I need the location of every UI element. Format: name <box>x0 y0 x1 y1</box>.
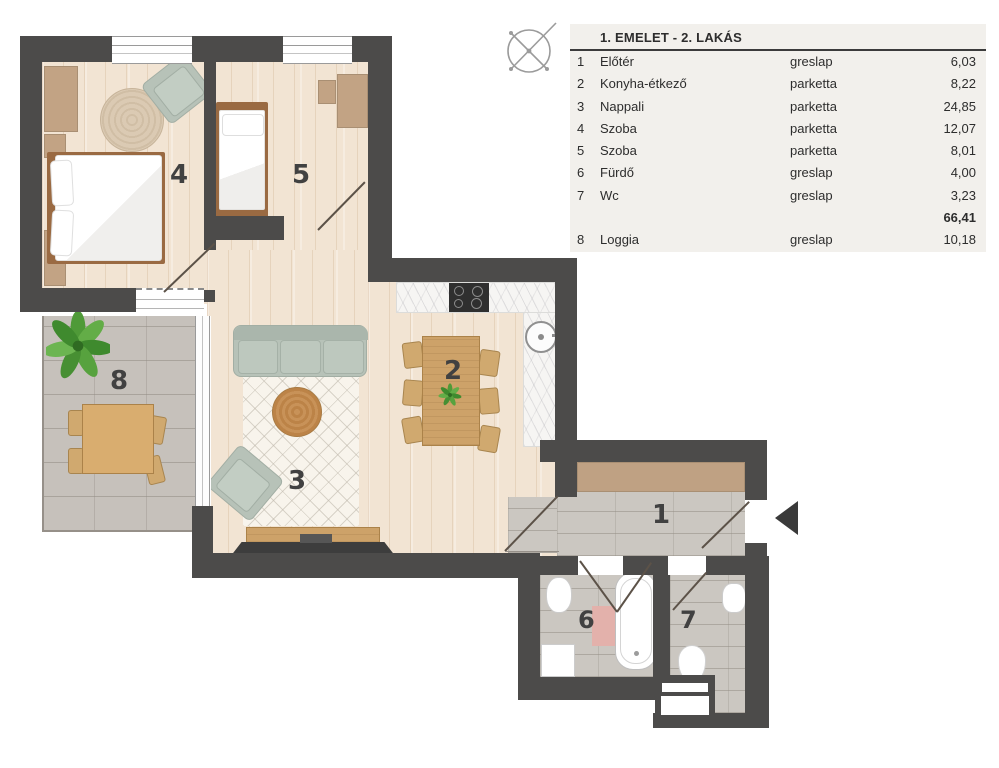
bed-pillow <box>50 209 74 256</box>
wall <box>540 556 578 575</box>
burner <box>471 298 482 309</box>
table-row: 4 Szoba parketta 12,07 <box>570 118 986 140</box>
sofa-cushion <box>238 340 278 374</box>
floor-material: greslap <box>790 162 910 184</box>
burner <box>454 286 464 296</box>
plant-icon <box>438 383 462 407</box>
table-total-row: 66,41 <box>570 207 986 229</box>
row-number: 5 <box>570 140 600 162</box>
window <box>283 36 352 64</box>
room-area: 6,03 <box>910 51 986 73</box>
room-name: Szoba <box>600 140 790 162</box>
table-row: 8 Loggia greslap 10,18 <box>570 229 986 251</box>
room-label-4: 4 <box>170 160 188 190</box>
row-number: 8 <box>570 229 600 251</box>
row-number: 4 <box>570 118 600 140</box>
area-table-title: 1. EMELET - 2. LAKÁS <box>570 24 986 51</box>
wc-niche-pane <box>661 696 709 715</box>
sink-drain <box>538 334 544 340</box>
floor-plan-page: 1 2 3 4 5 6 7 8 1. EMELET - 2. LAKÁS 1 E… <box>0 0 999 768</box>
bed-pillow <box>222 114 264 136</box>
area-table: 1. EMELET - 2. LAKÁS 1 Előtér greslap 6,… <box>570 24 986 252</box>
wardrobe <box>44 66 78 132</box>
row-number: 7 <box>570 185 600 207</box>
single-bed <box>216 102 268 218</box>
room-area: 24,85 <box>910 96 986 118</box>
loggia-table <box>82 404 154 474</box>
cooktop <box>449 283 489 312</box>
wall <box>216 216 284 240</box>
wc-niche-pane <box>662 683 708 692</box>
wall <box>518 677 672 700</box>
wardrobe <box>337 74 368 128</box>
tv-mount <box>300 534 332 543</box>
double-bed <box>47 152 165 264</box>
north-compass-icon <box>498 12 564 82</box>
table-row: 3 Nappali parketta 24,85 <box>570 96 986 118</box>
wall <box>368 258 577 282</box>
loggia-edge-line <box>42 316 44 532</box>
bed-pillow <box>50 159 74 206</box>
bathtub <box>615 572 657 670</box>
room-name: Fürdő <box>600 162 790 184</box>
coffee-table <box>272 387 322 437</box>
total-area: 66,41 <box>910 207 986 229</box>
wall <box>745 440 767 500</box>
sofa <box>233 325 367 377</box>
entrance-door-gap <box>745 500 767 543</box>
floor-material: greslap <box>790 51 910 73</box>
wall <box>745 556 769 728</box>
row-number <box>570 207 600 229</box>
room-label-6: 6 <box>578 606 595 634</box>
sofa-cushion <box>323 340 364 374</box>
wc-sink <box>722 583 746 613</box>
room-label-8: 8 <box>110 366 128 396</box>
room-label-1: 1 <box>652 500 670 530</box>
room-label-5: 5 <box>292 160 310 190</box>
room-name <box>600 207 790 229</box>
room-label-3: 3 <box>288 466 306 496</box>
room-name: Szoba <box>600 118 790 140</box>
room-label-2: 2 <box>444 356 462 386</box>
burner <box>454 299 463 308</box>
table-row: 7 Wc greslap 3,23 <box>570 185 986 207</box>
kitchen-sink <box>525 321 557 353</box>
bathtub-drain <box>634 651 639 656</box>
plant-icon <box>46 312 110 380</box>
wall <box>555 282 577 497</box>
floor-material: greslap <box>790 229 910 251</box>
dining-chair <box>402 379 424 407</box>
room-area: 12,07 <box>910 118 986 140</box>
table-row: 6 Fürdő greslap 4,00 <box>570 162 986 184</box>
floor-material: parketta <box>790 73 910 95</box>
wall <box>204 62 216 250</box>
desk <box>318 80 336 104</box>
room-label-7: 7 <box>680 606 697 634</box>
row-number: 2 <box>570 73 600 95</box>
hall-wardrobe <box>577 462 745 492</box>
loggia-glass-wall <box>195 316 211 506</box>
row-number: 1 <box>570 51 600 73</box>
dining-chair <box>478 387 500 415</box>
table-row: 1 Előtér greslap 6,03 <box>570 51 986 73</box>
loggia-edge-line <box>42 530 196 532</box>
floor-material <box>790 207 910 229</box>
washing-machine <box>541 644 575 677</box>
bathroom-sink <box>546 577 572 613</box>
table-row: 5 Szoba parketta 8,01 <box>570 140 986 162</box>
threshold-line <box>505 551 559 552</box>
table-row: 2 Konyha-étkező parketta 8,22 <box>570 73 986 95</box>
room-name: Loggia <box>600 229 790 251</box>
sofa-back <box>234 326 368 340</box>
room-area: 3,23 <box>910 185 986 207</box>
wall <box>20 36 42 312</box>
burner <box>472 286 483 297</box>
room-area: 8,01 <box>910 140 986 162</box>
window <box>112 36 192 64</box>
hall-tile-floor <box>557 492 745 556</box>
floor-material: greslap <box>790 185 910 207</box>
wall <box>368 36 392 282</box>
room-area: 8,22 <box>910 73 986 95</box>
floor-material: parketta <box>790 118 910 140</box>
entrance-arrow-icon <box>775 501 798 535</box>
wall <box>540 440 767 462</box>
room-name: Konyha-étkező <box>600 73 790 95</box>
room-area: 10,18 <box>910 229 986 251</box>
wall <box>196 553 540 578</box>
room-area: 4,00 <box>910 162 986 184</box>
row-number: 6 <box>570 162 600 184</box>
balcony-door <box>136 288 204 316</box>
floor-material: parketta <box>790 140 910 162</box>
row-number: 3 <box>570 96 600 118</box>
room-name: Nappali <box>600 96 790 118</box>
room-name: Wc <box>600 185 790 207</box>
room-name: Előtér <box>600 51 790 73</box>
floor-material: parketta <box>790 96 910 118</box>
wall <box>653 575 670 680</box>
wall <box>20 288 138 312</box>
sofa-cushion <box>280 340 321 374</box>
dining-chair <box>477 349 500 378</box>
